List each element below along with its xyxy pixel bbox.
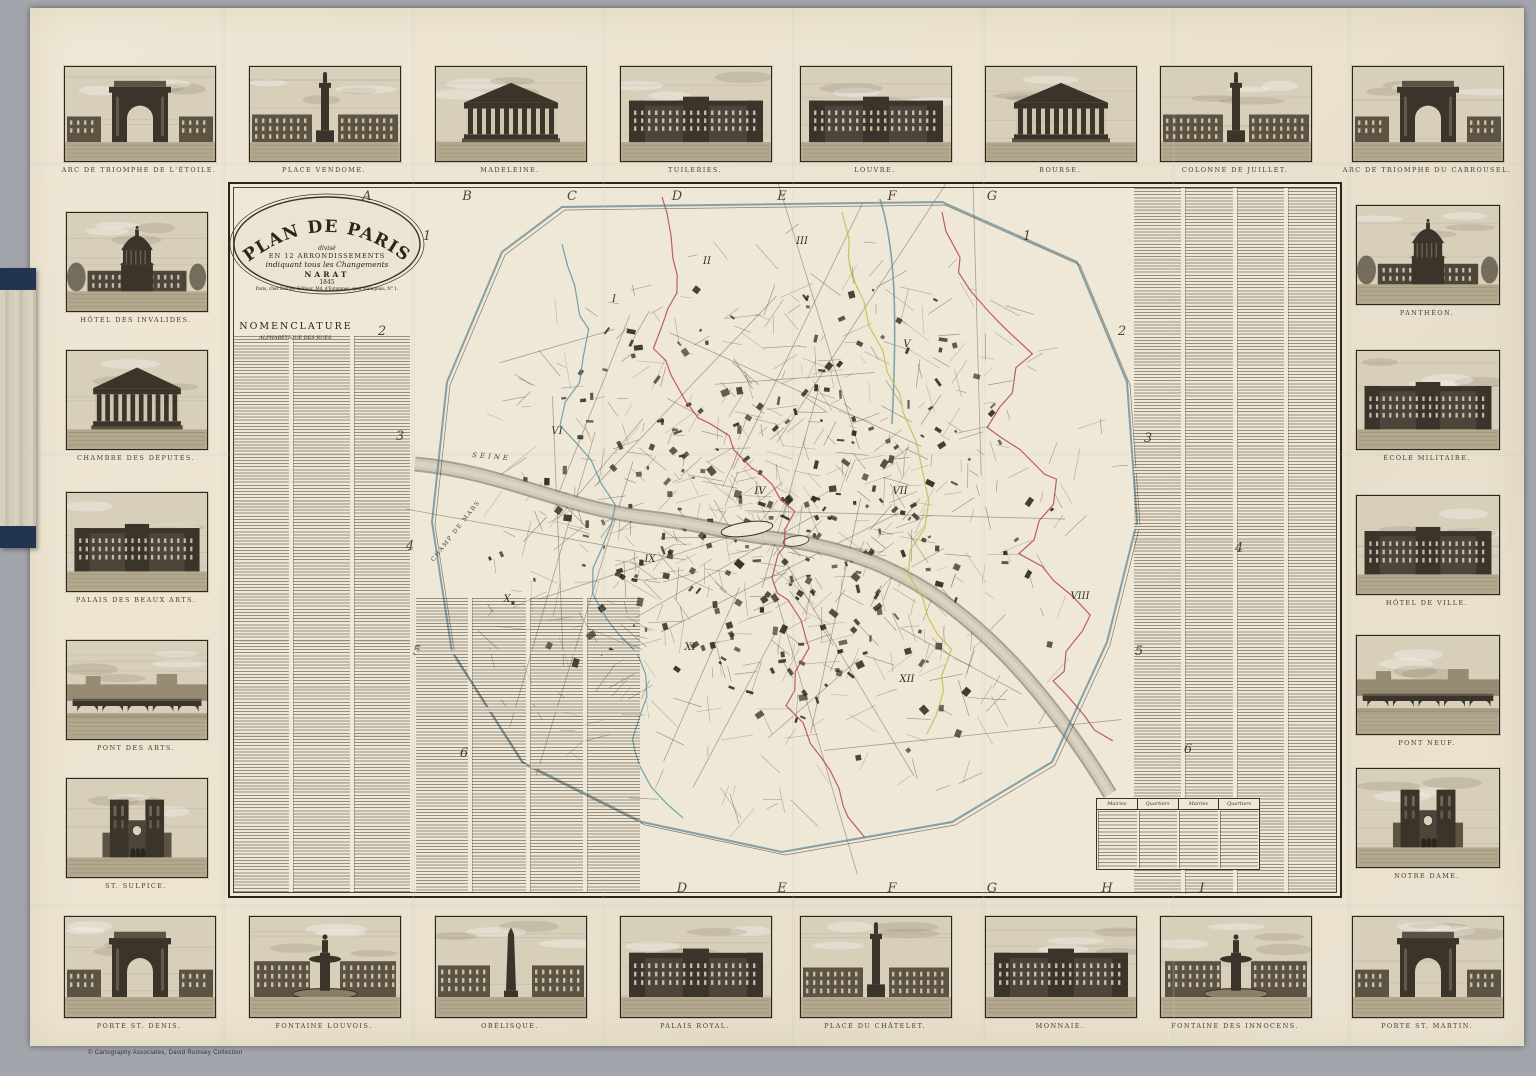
cartouche-line: divisé (318, 245, 336, 252)
vignette-arc-de-triomphe-du-carrousel (1352, 66, 1504, 162)
towers-engraving-icon (1357, 769, 1499, 867)
grid-label: F (886, 189, 897, 204)
index-column (587, 598, 640, 893)
cartouche-line: EN 12 ARRONDISSEMENTS (269, 252, 386, 260)
column-engraving-icon (801, 917, 951, 1017)
index-column (1237, 188, 1285, 894)
street-index-right (1132, 188, 1338, 894)
fountain-engraving-icon (250, 917, 400, 1017)
palace-engraving-icon (1357, 496, 1499, 594)
column-engraving-icon (250, 67, 400, 161)
vignette-palais-royal (620, 916, 772, 1018)
vignette-tuileries (620, 66, 772, 162)
arch-engraving-icon (1353, 917, 1503, 1017)
vignette-caption: PALAIS DES BEAUX ARTS. (41, 596, 231, 604)
vignette-caption: FONTAINE DES INNOCENS. (1135, 1022, 1335, 1030)
scan-mat: { "page": { "background": "#a2a6ac", "sh… (0, 0, 1536, 1076)
arrondissement-numeral: VI (551, 426, 563, 437)
palace-engraving-icon (67, 493, 207, 591)
dome-engraving-icon (1357, 206, 1499, 304)
arrondissement-numeral: IV (753, 486, 767, 497)
vignette-palais-des-beaux-arts (66, 492, 208, 592)
fold-crease (30, 163, 1524, 166)
grid-label: 2 (1117, 324, 1126, 339)
index-column (293, 336, 349, 893)
grid-label: E (776, 881, 787, 896)
palace-engraving-icon (986, 917, 1136, 1017)
vignette-caption: LOUVRE. (775, 166, 975, 174)
arrondissement-numeral: VII (892, 486, 908, 497)
cartouche-line: indiquant tous les Changements (266, 260, 389, 269)
fold-crease (30, 453, 1524, 456)
vignette-colonne-de-juillet (1160, 66, 1312, 162)
vignette-caption: ARC DE TRIOMPHE DU CARROUSEL. (1327, 166, 1527, 174)
grid-label: F (886, 881, 897, 896)
vignette-caption: NOTRE DAME. (1331, 872, 1523, 880)
vignette-place-vendome (249, 66, 401, 162)
palace-engraving-icon (801, 67, 951, 161)
palace-engraving-icon (621, 917, 771, 1017)
table-column (1220, 811, 1259, 868)
vignette-caption: PANTHÉON. (1331, 309, 1523, 317)
arrondissement-numeral: VIII (1070, 591, 1090, 602)
temple-engraving-icon (986, 67, 1136, 161)
vignette-caption: PONT NEUF. (1331, 739, 1523, 747)
arch-engraving-icon (65, 67, 215, 161)
column-engraving-icon (1161, 67, 1311, 161)
cartouche-line: 1845 (319, 279, 334, 286)
index-column (1185, 188, 1233, 894)
vignette-ecole-militaire (1356, 350, 1500, 450)
vignette-hotel-des-invalides (66, 212, 208, 312)
nomenclature-title: NOMENCLATURE (239, 321, 352, 332)
street-index-left (232, 336, 412, 893)
mairies-quartiers-table: Mairies Quartiers Mairies Quartiers (1096, 798, 1260, 870)
bridge-engraving-icon (1357, 636, 1499, 734)
cartouche-line: Paris, chez Danlos, Éditeur, Md. d'Estam… (256, 286, 399, 291)
index-column (1288, 188, 1336, 894)
index-column (530, 598, 583, 893)
grid-label: E (776, 189, 787, 204)
grid-label: G (987, 189, 997, 204)
grid-label: G (987, 881, 997, 896)
towers-engraving-icon (67, 779, 207, 877)
index-column (234, 336, 289, 893)
arch-engraving-icon (65, 917, 215, 1017)
index-column (354, 336, 410, 893)
index-column (472, 598, 525, 893)
vignette-notre-dame (1356, 768, 1500, 868)
vignette-caption: MONNAIE. (960, 1022, 1160, 1030)
palace-engraving-icon (621, 67, 771, 161)
grid-label: D (676, 881, 688, 896)
vignette-caption: BOURSE. (960, 166, 1160, 174)
table-column (1179, 811, 1218, 868)
grid-label: 1 (1023, 229, 1031, 244)
vignette-caption: ARC DE TRIOMPHE DE L'ÉTOILE. (39, 166, 239, 174)
table-column (1098, 811, 1137, 868)
flap-cap-bottom (0, 526, 36, 548)
collection-attribution: © Cartography Associates, David Rumsey C… (88, 1050, 243, 1056)
vignette-louvre (800, 66, 952, 162)
vignette-pont-des-arts (66, 640, 208, 740)
vignette-chambre-des-deputes (66, 350, 208, 450)
vignette-caption: PORTE ST. MARTIN. (1327, 1022, 1527, 1030)
temple-engraving-icon (67, 351, 207, 449)
cartouche-line: NARAT (305, 270, 350, 279)
grid-label: A (361, 189, 371, 204)
vignette-porte-st-denis (64, 916, 216, 1018)
vignette-caption: PORTE ST. DENIS. (39, 1022, 239, 1030)
bridge-engraving-icon (67, 641, 207, 739)
vignette-porte-st-martin (1352, 916, 1504, 1018)
grid-label: B (461, 189, 472, 204)
fountain-engraving-icon (1161, 917, 1311, 1017)
vignette-hotel-de-ville (1356, 495, 1500, 595)
street-index-bottom-left (414, 598, 642, 893)
vignette-madeleine (435, 66, 587, 162)
vignette-place-du-chatelet (800, 916, 952, 1018)
vignette-obelisque (435, 916, 587, 1018)
table-header: Mairies (1178, 799, 1219, 809)
grid-label: C (567, 189, 577, 204)
vignette-caption: TUILERIES. (595, 166, 795, 174)
vignette-bourse (985, 66, 1137, 162)
vignette-fontaine-louvois (249, 916, 401, 1018)
arrondissement-numeral: XI (683, 642, 696, 653)
vignette-caption: PALAIS ROYAL. (595, 1022, 795, 1030)
vignette-fontaine-des-innocens (1160, 916, 1312, 1018)
obelisk-engraving-icon (436, 917, 586, 1017)
vignette-caption: HÔTEL DE VILLE. (1331, 599, 1523, 607)
vignette-pont-neuf (1356, 635, 1500, 735)
temple-engraving-icon (436, 67, 586, 161)
vignette-caption: PLACE DU CHÂTELET. (775, 1022, 975, 1030)
index-column (416, 598, 468, 893)
vignette-caption: HÔTEL DES INVALIDES. (41, 316, 231, 324)
vignette-caption: MADELEINE. (410, 166, 610, 174)
vignette-caption: ST. SULPICE. (41, 882, 231, 890)
arrondissement-numeral: IX (643, 554, 656, 565)
arch-engraving-icon (1353, 67, 1503, 161)
grid-label: H (1100, 881, 1113, 896)
table-header: Quartiers (1218, 799, 1259, 809)
vignette-st-sulpice (66, 778, 208, 878)
flap-cap-top (0, 268, 36, 290)
dome-engraving-icon (67, 213, 207, 311)
vignette-pantheon (1356, 205, 1500, 305)
grid-label: D (671, 189, 683, 204)
vignette-arc-de-triomphe-de-l-etoile (64, 66, 216, 162)
vignette-caption: FONTAINE LOUVOIS. (224, 1022, 424, 1030)
arrondissement-numeral: II (702, 256, 712, 267)
table-header: Mairies (1097, 799, 1137, 809)
vignette-caption: OBÉLISQUE. (410, 1022, 610, 1030)
arrondissement-numeral: XII (898, 674, 915, 685)
fold-crease (30, 905, 1524, 908)
binding-cloth-flap (0, 268, 36, 548)
arrondissement-numeral: III (795, 236, 809, 247)
vignette-caption: COLONNE DE JUILLET. (1135, 166, 1335, 174)
vignette-monnaie (985, 916, 1137, 1018)
palace-engraving-icon (1357, 351, 1499, 449)
vignette-caption: PLACE VENDOME. (224, 166, 424, 174)
vignette-caption: PONT DES ARTS. (41, 744, 231, 752)
grid-label: 1 (423, 229, 431, 244)
